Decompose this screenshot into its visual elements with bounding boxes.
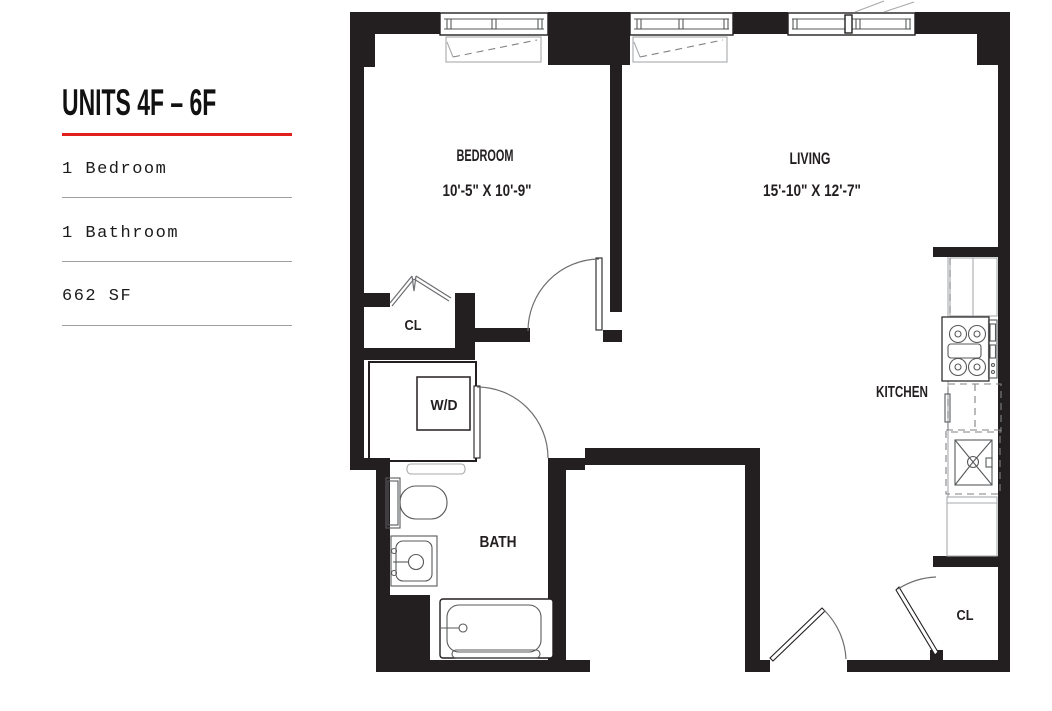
toilet [386, 478, 447, 528]
living-window-1 [630, 13, 733, 62]
room-label-kitchen: KITCHEN [876, 384, 928, 401]
room-label-bedroom: BEDROOM [457, 146, 514, 165]
bedroom-closet-bifold-doors [390, 276, 451, 306]
closet-label-bedroom: CL [405, 318, 422, 334]
bathtub [440, 599, 553, 658]
room-dimensions-living: 15'-10" X 12'-7" [763, 182, 861, 200]
kitchen-sink [946, 430, 1000, 494]
laundry-label: W/D [431, 397, 458, 414]
kitchen-cabinet [950, 258, 997, 316]
walls [350, 12, 1010, 672]
bath-door [474, 386, 548, 458]
room-dimensions-bedroom: 10'-5" X 10'-9" [443, 182, 532, 200]
washer-dryer: W/D [417, 377, 470, 430]
closet-label-entry: CL [957, 608, 974, 624]
bedroom-window [440, 13, 548, 62]
bath-shelf [407, 464, 465, 474]
room-label-living: LIVING [790, 149, 831, 168]
closet-door [896, 577, 938, 655]
kitchen-lower-cabinet [947, 497, 997, 556]
stove [942, 317, 997, 381]
room-label-bath: BATH [480, 534, 517, 551]
refrigerator [945, 384, 1001, 432]
bedroom-door [528, 258, 602, 331]
floor-plan: W/D BEDROOM 10'-5" X 10'-9" LIVING 15'-1… [0, 0, 1052, 711]
living-window-2 [788, 1, 915, 35]
entry-door [770, 608, 846, 661]
bathroom-sink [391, 536, 437, 586]
